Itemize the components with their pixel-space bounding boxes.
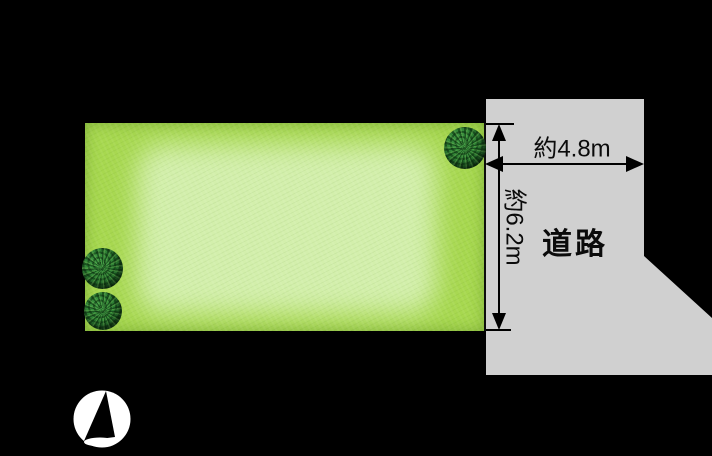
tree-icon [82, 248, 123, 289]
land-plot [85, 123, 486, 331]
site-plan-diagram: 約4.8m 約6.2m 道路 [0, 0, 712, 456]
road-label: 道路 [542, 219, 608, 263]
north-compass-icon [70, 386, 134, 452]
grass-texture [85, 123, 484, 331]
depth-dimension-label: 約6.2m [500, 188, 535, 265]
tree-icon [84, 292, 122, 330]
width-dimension-label: 約4.8m [533, 129, 610, 164]
tree-icon [444, 127, 486, 169]
